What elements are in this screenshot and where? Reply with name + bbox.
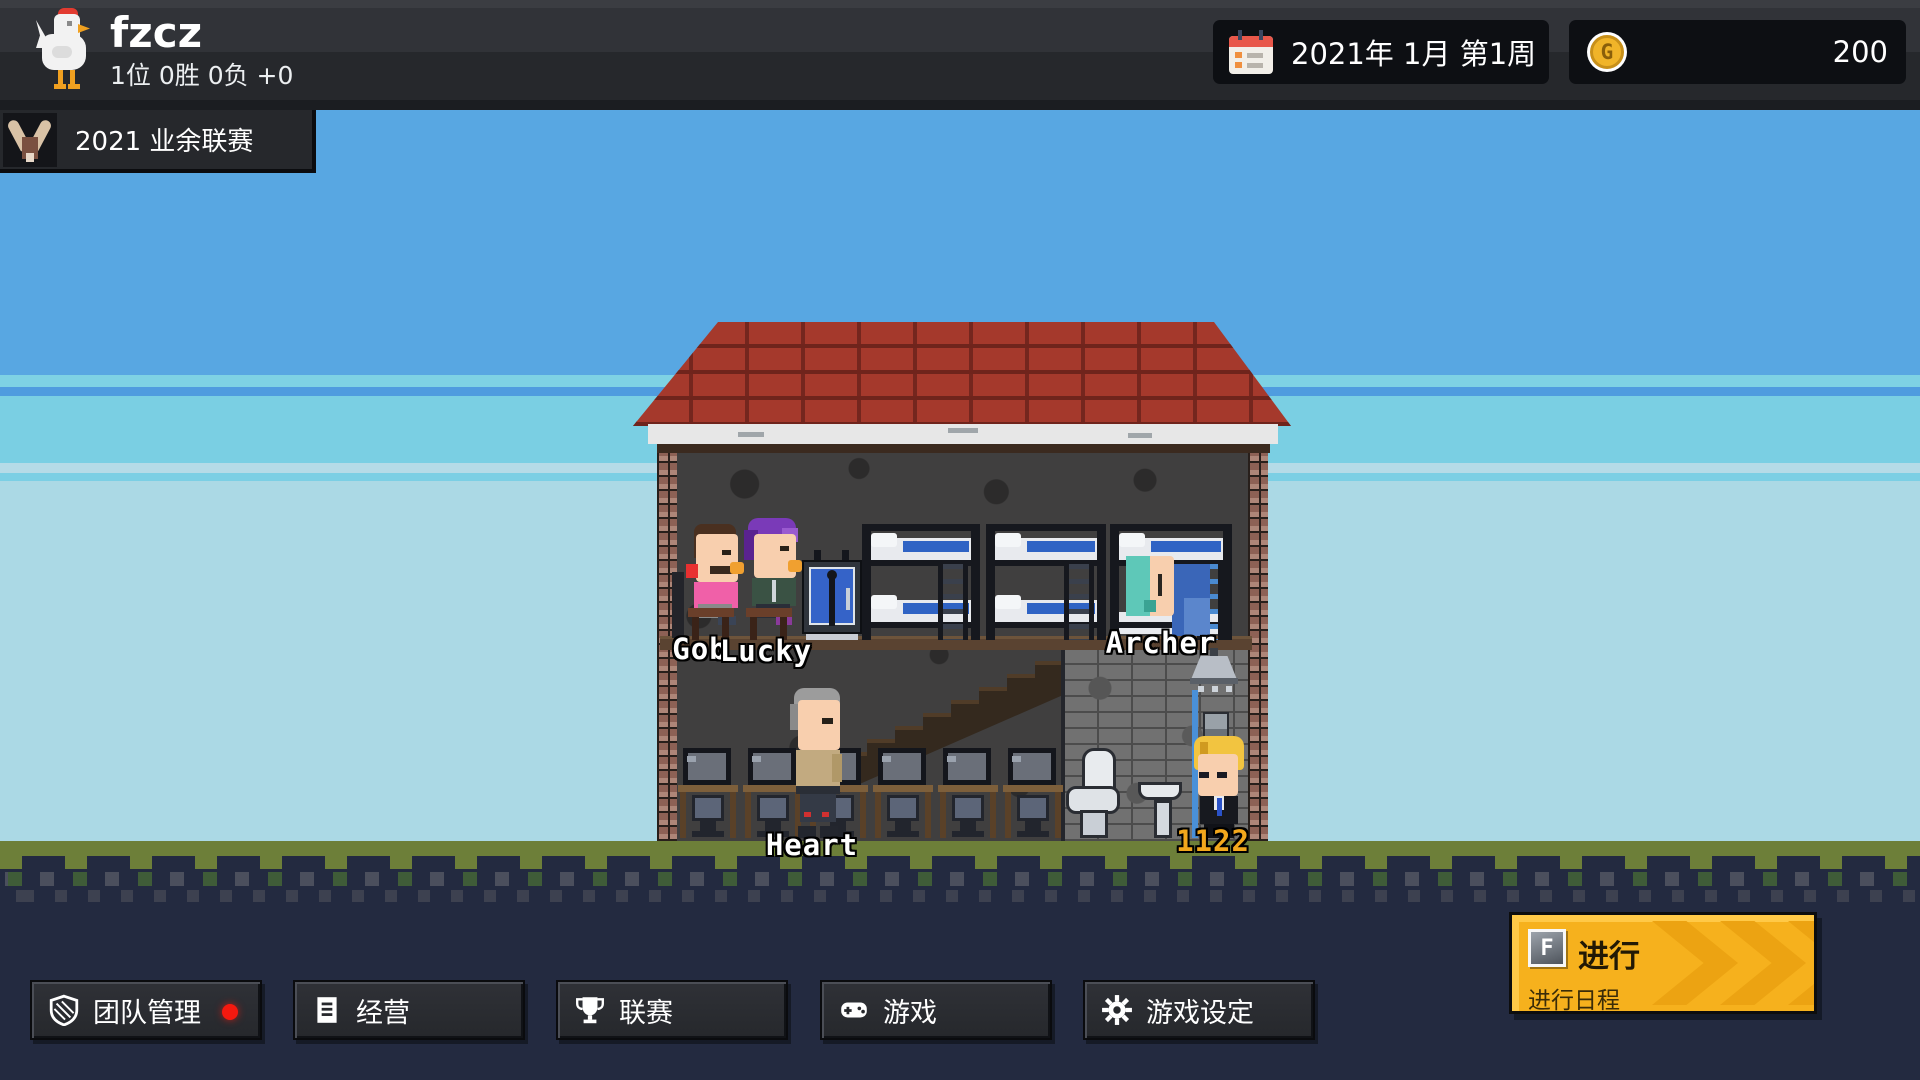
chair [1017, 795, 1049, 821]
league-name: 2021 业余联赛 [75, 121, 253, 158]
chair [692, 795, 724, 821]
chair [952, 795, 984, 821]
eye [1217, 772, 1227, 778]
button-label: 游戏 [883, 991, 937, 1030]
team-name: fzcz [110, 8, 202, 57]
monitor [878, 748, 926, 785]
team-record: 1位 0胜 0负 +0 [110, 56, 293, 92]
bucket [1203, 712, 1229, 738]
desk-computer [678, 748, 738, 840]
bunk-bed-archer [1110, 524, 1232, 640]
desk-computer [1003, 748, 1063, 840]
ladder [1064, 564, 1094, 640]
button-label: 游戏设定 [1146, 991, 1254, 1030]
button-label: 经营 [356, 991, 410, 1030]
name-label-archer: Archer [1106, 626, 1217, 660]
game-screen: Gob Lucky Archer Heart 1122 fzcz 1位 0胜 0… [0, 0, 1920, 1080]
bunk-bed [862, 524, 980, 640]
proceed-label: 进行 [1578, 931, 1640, 976]
stool [688, 608, 734, 617]
button-label: 团队管理 [93, 991, 201, 1030]
mattress [995, 538, 1097, 560]
gear-icon [1101, 994, 1133, 1026]
proceed-sublabel: 进行日程 [1528, 981, 1620, 1014]
game-settings-button[interactable]: 游戏设定 [1083, 980, 1315, 1040]
roof-beam [657, 444, 1270, 453]
chair [887, 795, 919, 821]
gold-coin-icon: G [1587, 32, 1627, 72]
name-label-lucky: Lucky [720, 634, 812, 668]
zipper [772, 580, 776, 602]
player-character-1122[interactable] [1192, 736, 1246, 838]
monitor [1008, 748, 1056, 785]
chair [757, 795, 789, 821]
player-character-heart[interactable] [788, 688, 848, 838]
calendar-icon [1229, 30, 1273, 74]
eye [780, 546, 789, 551]
eye [1199, 772, 1209, 778]
game-date: 2021年 1月 第1周 [1291, 31, 1536, 73]
face [696, 534, 738, 582]
chevron-right-icon [1652, 921, 1738, 1005]
desk-computer [938, 748, 998, 840]
face [798, 700, 840, 750]
chicken-icon [36, 8, 100, 94]
trophy-icon [574, 994, 606, 1026]
button-label: 联赛 [619, 991, 673, 1030]
bunk-bed [986, 524, 1106, 640]
ground-pattern [0, 890, 1920, 902]
team-management-button[interactable]: 团队管理 [30, 980, 262, 1040]
management-button[interactable]: 经营 [293, 980, 525, 1040]
date-panel: 2021年 1月 第1周 [1213, 20, 1549, 84]
document-icon [311, 994, 343, 1026]
refrigerator [802, 550, 862, 640]
game-button[interactable]: 游戏 [820, 980, 1052, 1040]
f-hotkey-icon: F [1528, 929, 1566, 967]
belt [796, 786, 840, 794]
toilet [1066, 748, 1124, 838]
eye [722, 550, 731, 555]
money-panel: G 200 [1569, 20, 1906, 84]
food [788, 560, 802, 572]
antler-trophy-icon [3, 113, 57, 167]
eye [822, 718, 833, 724]
name-label-heart: Heart [766, 828, 858, 862]
notification-dot [222, 1004, 238, 1020]
player-character-lucky[interactable] [742, 518, 806, 640]
name-label-1122: 1122 [1176, 824, 1250, 858]
monitor [943, 748, 991, 785]
house-roof [633, 322, 1291, 426]
desk-computer [873, 748, 933, 840]
money-amount: 200 [1833, 35, 1888, 69]
stool [746, 608, 792, 617]
ground-pattern [0, 872, 1920, 886]
monitor [683, 748, 731, 785]
ladder [938, 564, 968, 640]
tie [1217, 798, 1222, 816]
mattress [871, 538, 971, 560]
coat-rack [672, 572, 684, 638]
shield-icon [48, 994, 80, 1026]
player-character-archer[interactable] [1126, 556, 1174, 616]
player-character-gob[interactable] [686, 524, 748, 640]
grass-tabs [0, 856, 1920, 869]
roof-trim [648, 424, 1278, 444]
league-button[interactable]: 联赛 [556, 980, 788, 1040]
league-badge[interactable]: 2021 业余联赛 [0, 110, 316, 173]
closed-eye [1158, 574, 1162, 596]
pants [800, 794, 836, 822]
grass-strip [0, 841, 1920, 856]
gamepad-icon [838, 994, 870, 1026]
proceed-button[interactable]: F 进行 进行日程 [1509, 912, 1817, 1014]
